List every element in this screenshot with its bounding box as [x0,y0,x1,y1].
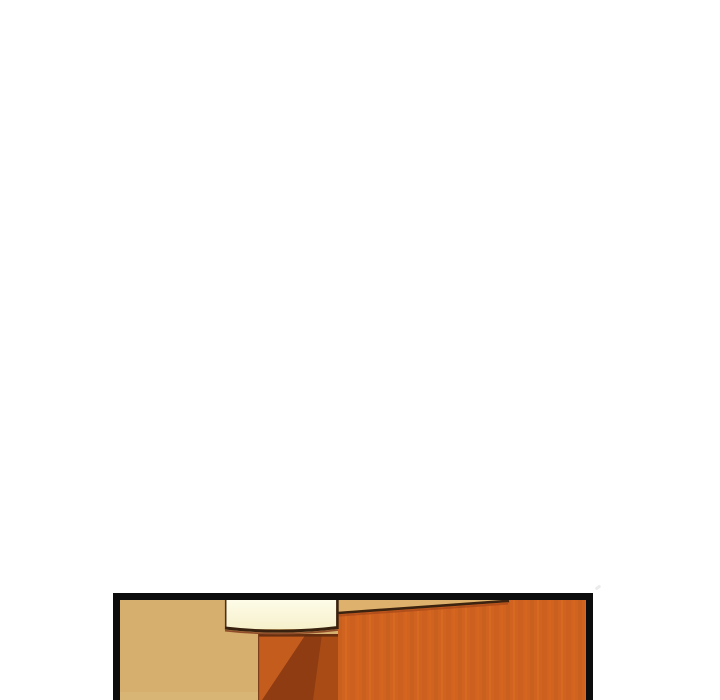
white-slab [225,600,339,629]
comic-panel [113,593,593,700]
scene-svg [120,600,586,700]
render-artifact-speck [595,584,602,590]
wood-panel [338,600,586,700]
page-root [0,0,720,700]
floor-strip [120,692,260,700]
